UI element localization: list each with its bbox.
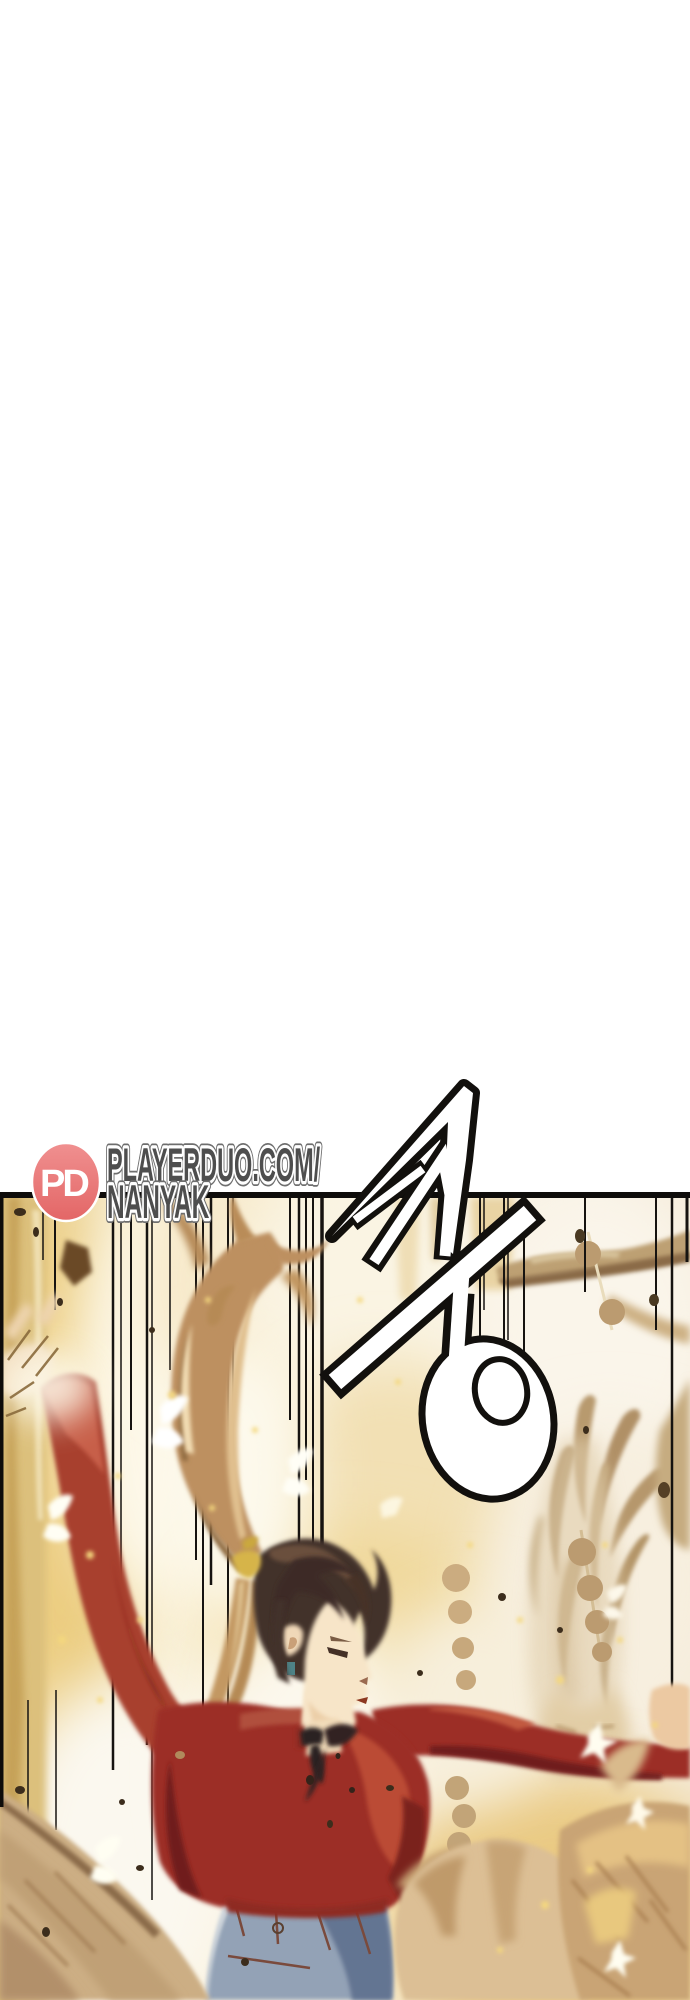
svg-text:PD: PD [40,1163,88,1205]
svg-text:NANYAK: NANYAK [107,1175,209,1228]
